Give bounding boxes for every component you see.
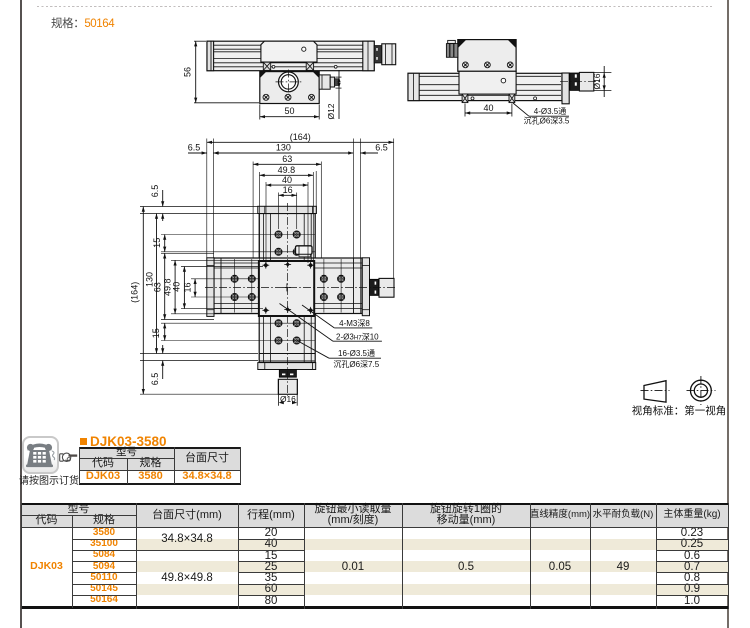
svg-text:6.5: 6.5	[150, 185, 160, 198]
svg-text:40: 40	[172, 282, 182, 292]
svg-text:40: 40	[483, 103, 493, 113]
svg-text:2-Ø3H7深10: 2-Ø3H7深10	[336, 332, 379, 341]
svg-text:15: 15	[152, 238, 162, 248]
svg-text:16: 16	[183, 282, 193, 292]
svg-text:6.5: 6.5	[188, 143, 201, 153]
svg-text:15: 15	[151, 328, 161, 338]
svg-text:Ø16: Ø16	[592, 73, 602, 89]
svg-text:16-Ø3.5通: 16-Ø3.5通	[338, 348, 375, 358]
svg-text:Ø12: Ø12	[326, 103, 336, 119]
svg-text:6.5: 6.5	[375, 143, 388, 153]
svg-text:56: 56	[183, 67, 193, 77]
svg-text:视角标准：第一视角: 视角标准：第一视角	[632, 404, 727, 417]
svg-text:49.8: 49.8	[278, 165, 296, 175]
svg-text:130: 130	[276, 143, 291, 153]
svg-text:沉孔Ø6深3.5: 沉孔Ø6深3.5	[524, 116, 570, 125]
svg-text:4-Ø3.5通: 4-Ø3.5通	[534, 106, 566, 116]
svg-text:63: 63	[153, 282, 163, 292]
svg-text:(164): (164)	[130, 282, 140, 303]
svg-text:6.5: 6.5	[150, 373, 160, 386]
svg-text:63: 63	[282, 154, 292, 164]
svg-text:50: 50	[284, 106, 294, 116]
svg-text:沉孔Ø6深7.5: 沉孔Ø6深7.5	[333, 360, 379, 369]
svg-text:40: 40	[282, 175, 292, 185]
svg-text:16: 16	[283, 185, 293, 195]
svg-text:Ø16: Ø16	[280, 394, 296, 404]
svg-text:4-M3深8: 4-M3深8	[339, 319, 370, 328]
svg-text:(164): (164)	[290, 132, 311, 142]
